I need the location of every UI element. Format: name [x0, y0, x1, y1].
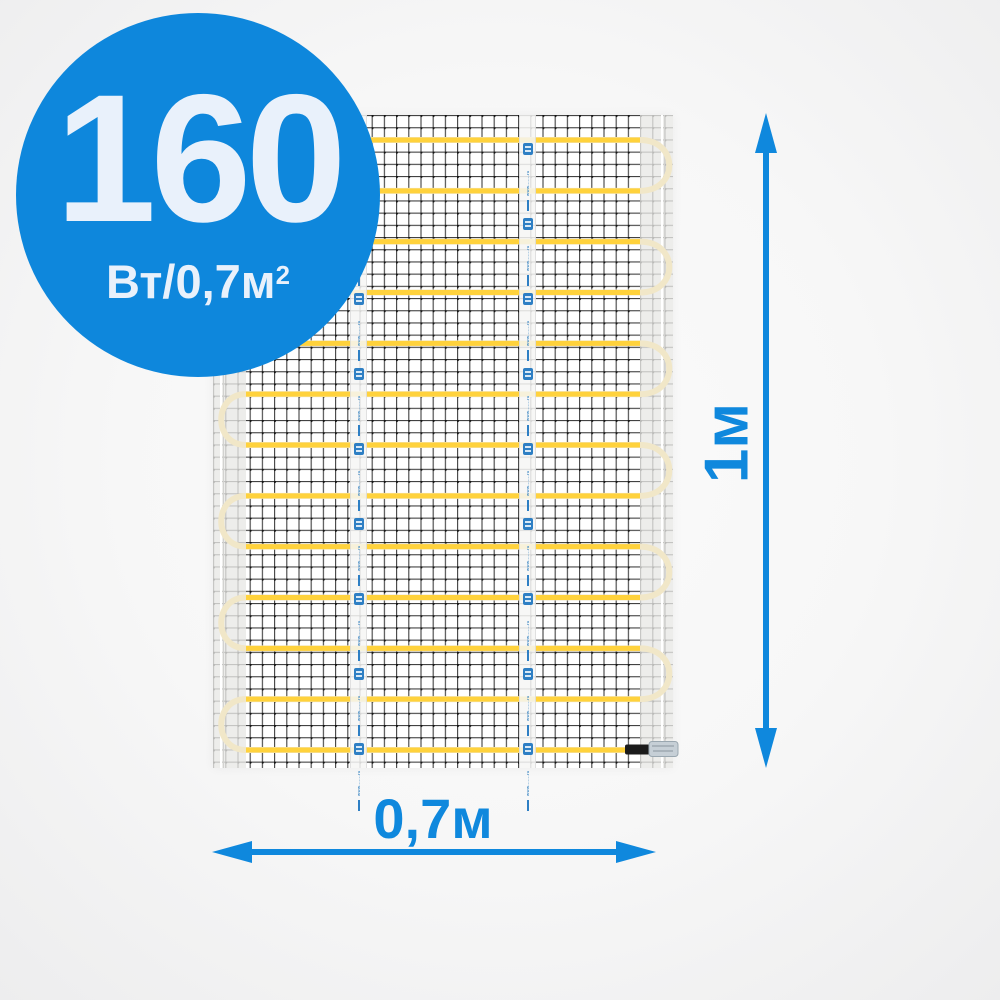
tape-print-block: www.......ru: [520, 668, 535, 736]
tape-website-text: www.......ru: [357, 533, 361, 571]
height-dimension-arrow: [763, 148, 769, 732]
brand-logo-icon: [523, 743, 533, 755]
brand-logo-icon: [523, 518, 533, 530]
tape-website-text: www.......ru: [526, 533, 530, 571]
power-value: 160: [55, 77, 341, 241]
tape-print-block: www.......ru: [351, 743, 366, 811]
power-unit: Вт/0,7м2: [106, 254, 290, 309]
tape-print-block: www.......ru: [351, 518, 366, 586]
tape-divider-mark: [358, 350, 360, 361]
product-image-page: { "product_badge": { "power_value": "160…: [0, 0, 1000, 1000]
brand-logo-icon: [523, 368, 533, 380]
tape-print-block: www.......ru: [520, 368, 535, 436]
brand-logo-icon: [354, 443, 364, 455]
tape-divider-mark: [527, 725, 529, 736]
tape-divider-mark: [358, 500, 360, 511]
brand-logo-icon: [354, 743, 364, 755]
brand-logo-icon: [523, 218, 533, 230]
tape-website-text: www.......ru: [526, 458, 530, 496]
brand-logo-icon: [354, 518, 364, 530]
tape-website-text: www.......ru: [357, 608, 361, 646]
tape-print-block: www.......ru: [520, 218, 535, 286]
tape-print-block: www.......ru: [520, 518, 535, 586]
cable-end-sleeve: [625, 745, 650, 755]
tape-print-block: www.......ru: [351, 443, 366, 511]
tape-print-block: www.......ru: [520, 293, 535, 361]
brand-logo-icon: [354, 293, 364, 305]
tape-website-text: www.......ru: [526, 758, 530, 796]
tape-print-block: www.......ru: [520, 593, 535, 661]
tape-website-text: www.......ru: [526, 308, 530, 346]
arrow-right-icon: [616, 841, 656, 863]
height-dimension-label: 1м: [692, 403, 763, 483]
tape-website-text: www.......ru: [357, 308, 361, 346]
tape-divider-mark: [527, 425, 529, 436]
tape-divider-mark: [527, 350, 529, 361]
tape-print-block: www.......ru: [520, 743, 535, 811]
tape-divider-mark: [527, 200, 529, 211]
tape-divider-mark: [358, 425, 360, 436]
tape-website-text: www.......ru: [526, 233, 530, 271]
tape-print-block: www.......ru: [351, 668, 366, 736]
tape-website-text: www.......ru: [357, 758, 361, 796]
tape-divider-mark: [527, 650, 529, 661]
tape-divider-mark: [358, 725, 360, 736]
brand-logo-icon: [523, 443, 533, 455]
tape-website-text: www.......ru: [357, 683, 361, 721]
tape-website-text: www.......ru: [526, 683, 530, 721]
brand-logo-icon: [523, 668, 533, 680]
arrow-down-icon: [755, 728, 777, 768]
tape-print-block: www.......ru: [351, 593, 366, 661]
tape-divider-mark: [527, 275, 529, 286]
tape-divider-mark: [527, 800, 529, 811]
tape-print-block: www.......ru: [351, 293, 366, 361]
power-unit-text: Вт/0,7м: [106, 255, 276, 308]
brand-logo-icon: [354, 668, 364, 680]
power-unit-superscript: 2: [276, 262, 290, 290]
width-dimension-label: 0,7м: [373, 786, 492, 851]
brand-logo-icon: [523, 293, 533, 305]
tape-website-text: www.......ru: [526, 383, 530, 421]
tape-divider-mark: [358, 575, 360, 586]
tape-website-text: www.......ru: [526, 158, 530, 196]
brand-logo-icon: [523, 593, 533, 605]
fixation-tape-right: www.......ruwww.......ruwww.......ruwww.…: [519, 115, 536, 768]
tape-divider-mark: [358, 800, 360, 811]
tape-divider-mark: [527, 500, 529, 511]
cable-end-splice: [649, 742, 678, 757]
tape-print-block: www.......ru: [520, 443, 535, 511]
tape-print-block: www.......ru: [520, 143, 535, 211]
tape-website-text: www.......ru: [526, 608, 530, 646]
brand-logo-icon: [523, 143, 533, 155]
brand-logo-icon: [354, 368, 364, 380]
tape-divider-mark: [358, 650, 360, 661]
power-badge: 160 Вт/0,7м2: [16, 13, 380, 377]
tape-print-block: www.......ru: [351, 368, 366, 436]
arrow-up-icon: [755, 113, 777, 153]
tape-website-text: www.......ru: [357, 383, 361, 421]
brand-logo-icon: [354, 593, 364, 605]
tape-website-text: www.......ru: [357, 458, 361, 496]
tape-divider-mark: [527, 575, 529, 586]
